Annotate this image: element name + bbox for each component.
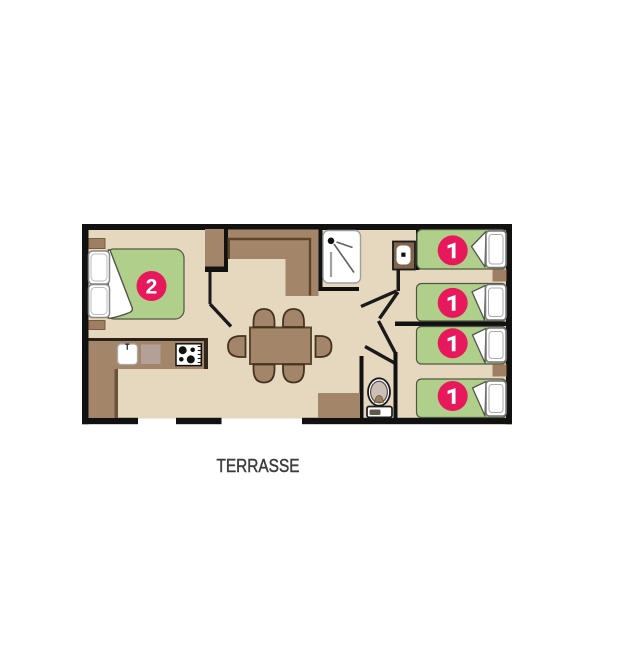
svg-text:2: 2 <box>146 276 158 299</box>
svg-text:TERRASSE: TERRASSE <box>217 455 300 476</box>
